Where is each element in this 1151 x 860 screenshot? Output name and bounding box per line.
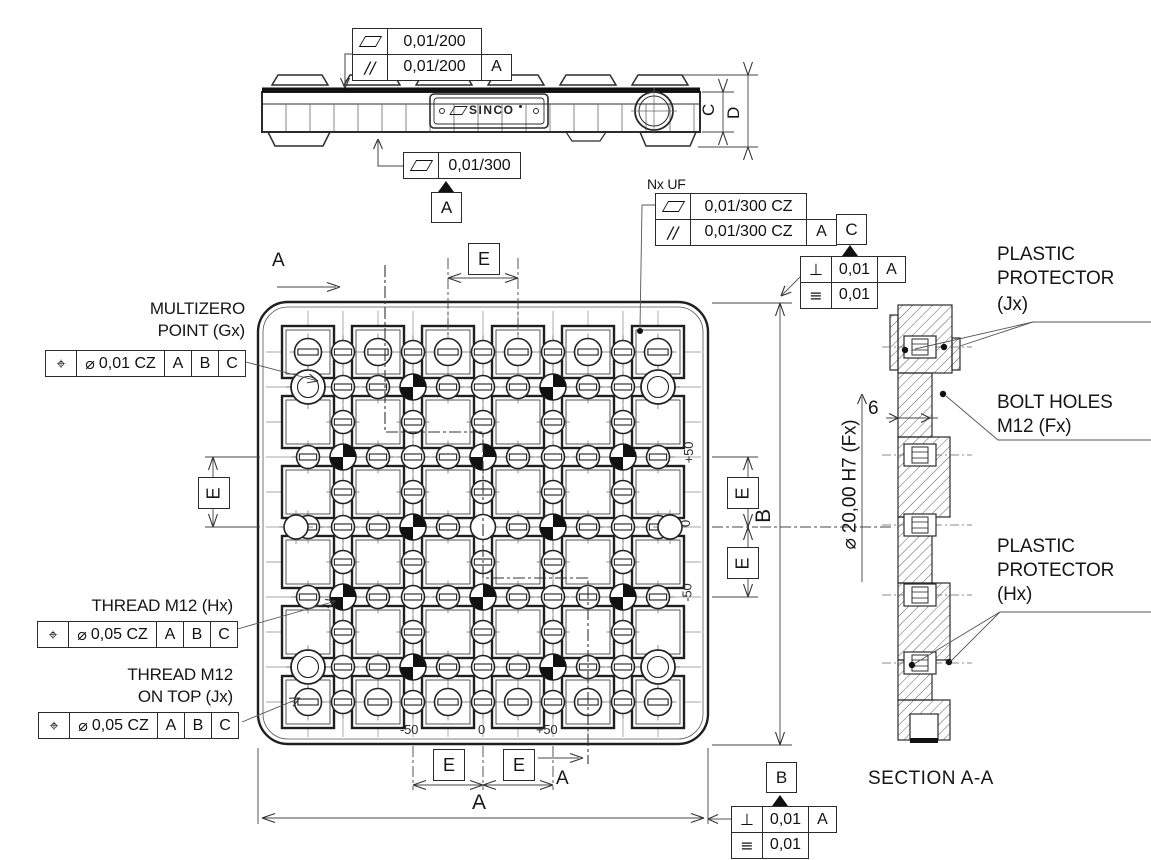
fcf-datum: C <box>219 350 246 377</box>
fcf-datum: A <box>158 712 185 739</box>
dim-e-box-right-2: E <box>727 547 759 579</box>
dim-e-box-bottom-2: E <box>503 749 535 781</box>
pocket-square <box>282 536 334 588</box>
flatness-icon <box>655 193 691 220</box>
fcf-value: 0,01/200 <box>388 28 482 55</box>
flatness-icon <box>403 152 439 179</box>
coord-bottom-0: 0 <box>478 722 485 737</box>
symmetry-icon: ≡ <box>800 282 832 309</box>
offset-6-label: 6 <box>868 398 878 420</box>
thread-jx-label-1: THREAD M12 <box>53 665 233 685</box>
pocket-square <box>632 536 684 588</box>
threaded-insert <box>882 584 972 606</box>
position-icon: ⌖ <box>45 350 77 377</box>
fcf-top-parallelism: // 0,01/200 A <box>352 54 512 81</box>
protector-hx-label-3: (Hx) <box>997 584 1032 606</box>
perpendicularity-icon: ⊥ <box>800 256 832 283</box>
pocket-square <box>352 466 404 518</box>
pocket-square <box>492 466 544 518</box>
datum-a-flag: A <box>431 192 462 223</box>
datum-triangle <box>438 181 454 192</box>
thread-hx-label: THREAD M12 (Hx) <box>53 596 233 616</box>
fcf-datum: A <box>165 350 192 377</box>
side-view-dims <box>682 62 758 160</box>
pocket-square <box>352 606 404 658</box>
fcf-datum: C <box>211 621 238 648</box>
dim-e-box-left: E <box>198 477 230 509</box>
pocket-square <box>352 396 404 448</box>
pocket-square <box>282 466 334 518</box>
fcf-thread-jx-position: ⌖ ⌀ 0,05 CZ A B C <box>38 712 239 739</box>
brand-logo-dot <box>519 105 522 108</box>
fcf-c-symmetry: ≡ 0,01 <box>800 282 878 309</box>
fcf-value: 0,01 <box>832 282 878 309</box>
fcf-datum: C <box>212 712 239 739</box>
fcf-value: 0,01 <box>763 832 809 859</box>
thread-jx-label-2: ON TOP (Jx) <box>53 687 233 707</box>
protector-jx-label-3: (Jx) <box>997 294 1028 316</box>
fcf-thread-hx-position: ⌖ ⌀ 0,05 CZ A B C <box>37 621 238 648</box>
fcf-value: 0,01/300 CZ <box>691 219 807 246</box>
symmetry-icon: ≡ <box>731 832 763 859</box>
parallelism-icon: // <box>352 54 388 81</box>
protector-jx-label-2: PROTECTOR <box>997 268 1114 290</box>
fcf-value: 0,01 <box>832 256 878 283</box>
pocket-square <box>632 466 684 518</box>
protector-jx-label-1: PLASTIC <box>997 244 1075 266</box>
fcf-value: 0,01 <box>763 806 809 833</box>
protector-hx-label-2: PROTECTOR <box>997 560 1114 582</box>
cut-label-top: A <box>272 250 284 272</box>
pocket-square <box>352 536 404 588</box>
fcf-b-perpendicularity: ⊥ 0,01 A <box>731 806 837 833</box>
cut-label-bottom: A <box>556 768 568 790</box>
pocket-square <box>422 606 474 658</box>
pocket-square <box>492 606 544 658</box>
fcf-bottom-flatness: 0,01/300 <box>403 152 521 179</box>
diameter-icon: ⌀ <box>85 354 95 373</box>
fcf-nxuf-flatness: 0,01/300 CZ <box>655 193 807 220</box>
bore-dimension-label: ⌀ 20,00 H7 (Fx) <box>839 380 862 590</box>
bolt-holes-label-2: M12 (Fx) <box>997 416 1071 438</box>
fcf-value: ⌀ 0,05 CZ <box>70 712 158 739</box>
section-title: SECTION A-A <box>868 768 994 790</box>
fcf-value: 0,01/200 <box>388 54 482 81</box>
threaded-insert <box>882 444 972 466</box>
brand-logo: SINCO <box>452 103 522 117</box>
multizero-label-2: POINT (Gx) <box>60 321 245 341</box>
nx-uf-label: Nx UF <box>647 176 686 192</box>
position-icon: ⌖ <box>38 712 70 739</box>
pocket-square <box>562 396 614 448</box>
diameter-icon: ⌀ <box>78 716 88 735</box>
coord-right-0: 0 <box>678 520 693 527</box>
fcf-multizero-position: ⌖ ⌀ 0,01 CZ A B C <box>45 350 246 377</box>
diameter-icon: ⌀ <box>77 625 87 644</box>
fcf-top-flatness: 0,01/200 <box>352 28 482 55</box>
coord-right-plus50: +50 <box>681 442 696 463</box>
pocket-square <box>562 466 614 518</box>
fcf-datum: A <box>809 806 837 833</box>
pocket-square <box>492 396 544 448</box>
datum-c-flag: C <box>836 214 867 245</box>
pocket-square <box>422 396 474 448</box>
bolt-holes-label-1: BOLT HOLES <box>997 392 1113 414</box>
dim-e-box-top: E <box>468 243 500 275</box>
fcf-b-symmetry: ≡ 0,01 <box>731 832 809 859</box>
fcf-datum: B <box>192 350 219 377</box>
section-view <box>858 305 1151 743</box>
fcf-value: 0,01/300 <box>439 152 521 179</box>
fcf-value: 0,01/300 CZ <box>691 193 807 220</box>
fcf-datum: A <box>157 621 184 648</box>
dim-d-label: D <box>724 107 744 119</box>
coord-bottom-plus50: +50 <box>536 722 557 737</box>
multizero-label-1: MULTIZERO <box>60 299 245 319</box>
threaded-insert <box>882 652 972 674</box>
fcf-value: ⌀ 0,05 CZ <box>69 621 157 648</box>
threaded-insert <box>882 514 972 536</box>
fcf-datum: A <box>878 256 906 283</box>
engineering-drawing: 0,01/200 // 0,01/200 A 0,01/300 A Nx UF … <box>0 0 1151 860</box>
parallelism-icon: // <box>655 219 691 246</box>
pocket-square <box>492 536 544 588</box>
fcf-datum: B <box>185 712 212 739</box>
fcf-c-perpendicularity: ⊥ 0,01 A <box>800 256 906 283</box>
perpendicularity-icon: ⊥ <box>731 806 763 833</box>
position-icon: ⌖ <box>37 621 69 648</box>
datum-b-flag: B <box>766 762 797 793</box>
fcf-datum: B <box>184 621 211 648</box>
coord-right-minus50: -50 <box>680 583 695 601</box>
fcf-datum: A <box>482 54 512 81</box>
flatness-icon <box>352 28 388 55</box>
brand-logo-icon <box>449 106 468 115</box>
dim-c-label: C <box>699 104 719 116</box>
pocket-square <box>422 536 474 588</box>
datum-triangle <box>842 245 858 256</box>
dim-b-label: B <box>752 509 776 523</box>
fcf-value: ⌀ 0,01 CZ <box>77 350 165 377</box>
fcf-nxuf-parallelism: // 0,01/300 CZ A <box>655 219 837 246</box>
datum-triangle <box>772 795 788 806</box>
protector-hx-label-1: PLASTIC <box>997 536 1075 558</box>
pocket-square <box>422 466 474 518</box>
dim-e-box-bottom-1: E <box>433 749 465 781</box>
fcf-datum: A <box>807 219 837 246</box>
coord-bottom-minus50: -50 <box>400 722 418 737</box>
pocket-square <box>562 536 614 588</box>
dim-a-label: A <box>472 791 486 815</box>
dim-e-box-right-1: E <box>727 477 759 509</box>
